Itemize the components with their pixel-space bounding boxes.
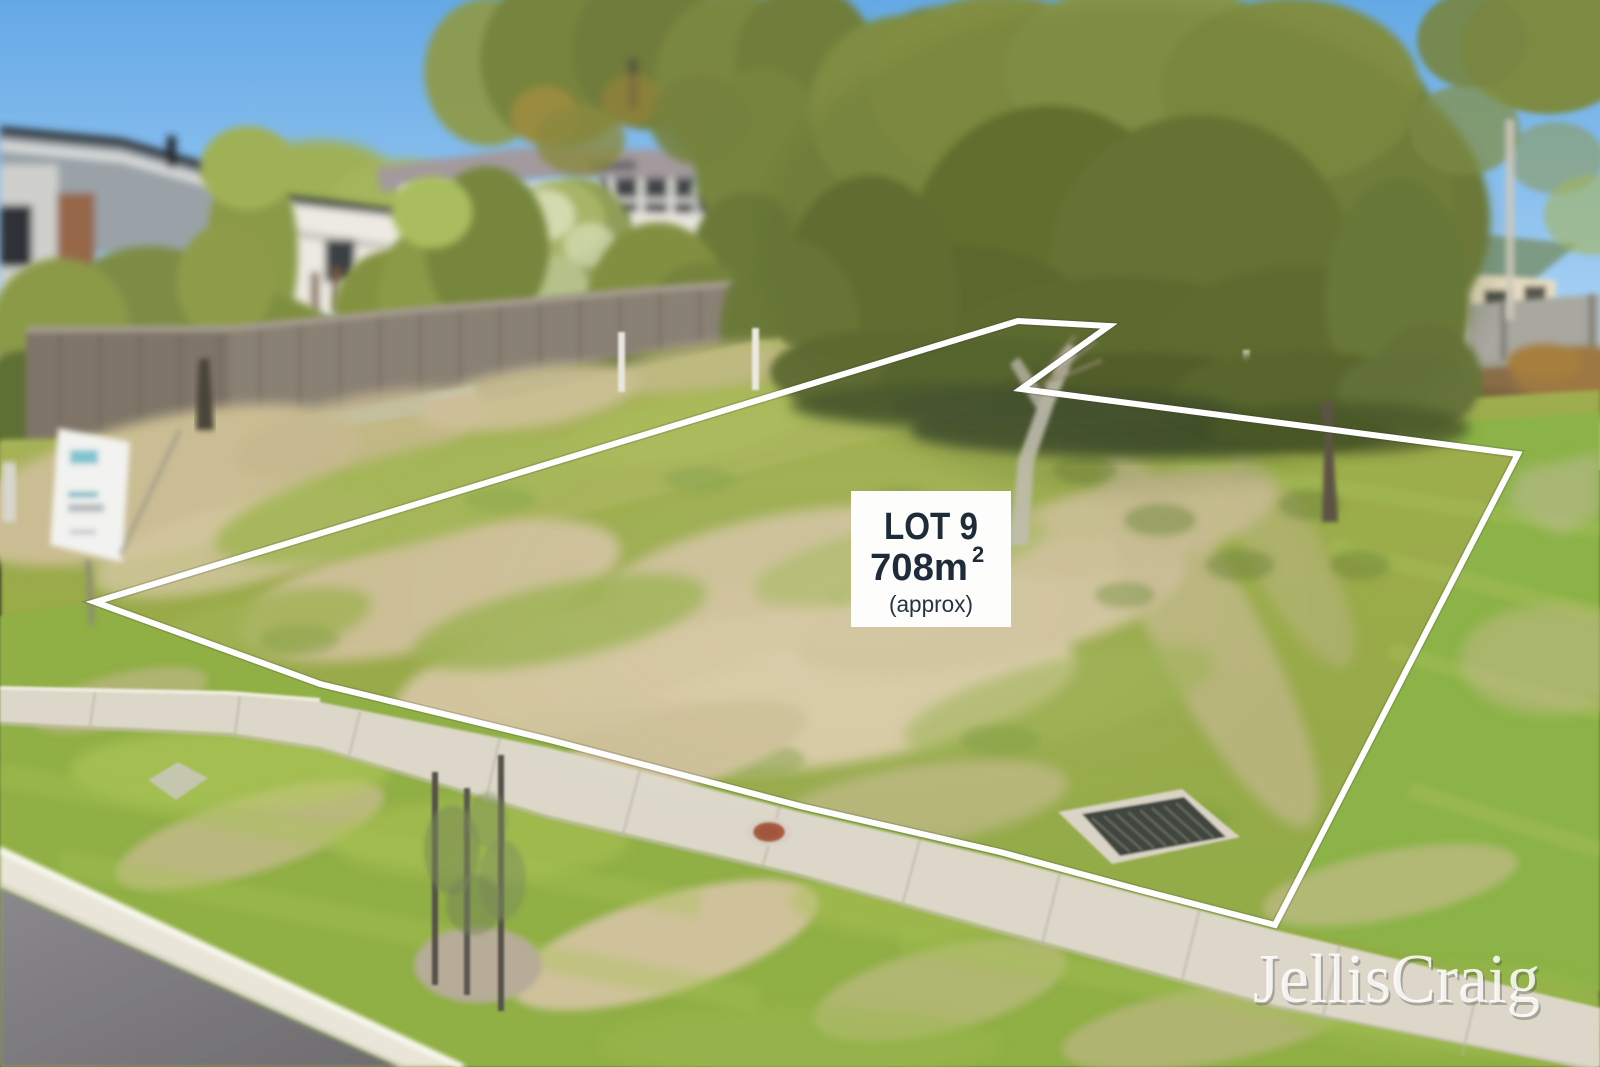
svg-text:LOT 9: LOT 9 (884, 506, 978, 548)
svg-text:JellisCraig: JellisCraig (1253, 941, 1540, 1018)
svg-text:2: 2 (972, 542, 984, 567)
svg-text:708m: 708m (870, 547, 968, 589)
svg-text:(approx): (approx) (889, 591, 973, 617)
